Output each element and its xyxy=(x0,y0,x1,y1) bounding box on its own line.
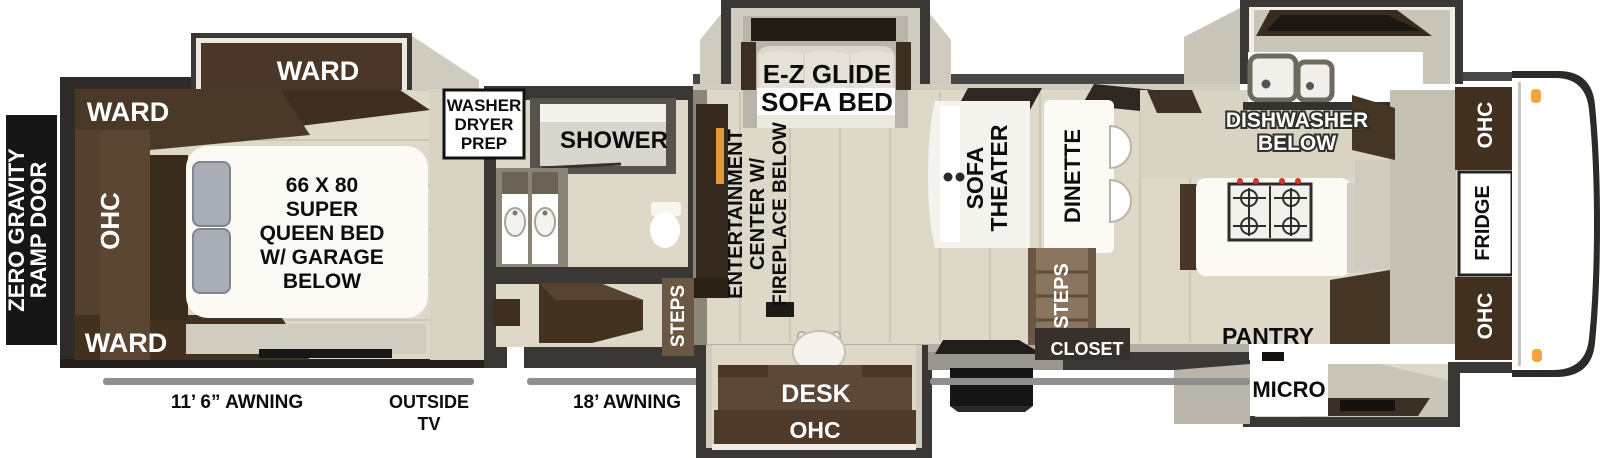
svg-text:MICRO: MICRO xyxy=(1252,377,1325,402)
svg-text:THEATER: THEATER xyxy=(986,124,1012,231)
svg-text:WARD: WARD xyxy=(277,56,360,86)
svg-text:TV: TV xyxy=(417,414,440,434)
svg-text:STEPS: STEPS xyxy=(668,285,689,347)
svg-text:WARD: WARD xyxy=(85,328,168,358)
svg-text:W/ GARAGE: W/ GARAGE xyxy=(260,246,384,269)
svg-text:CENTER W/: CENTER W/ xyxy=(747,157,769,270)
svg-text:OHC: OHC xyxy=(1474,293,1497,340)
svg-text:BELOW: BELOW xyxy=(1258,132,1336,155)
svg-text:STEPS: STEPS xyxy=(1051,263,1073,329)
svg-text:OHC: OHC xyxy=(95,192,125,250)
svg-text:DISHWASHER: DISHWASHER xyxy=(1226,109,1368,132)
svg-text:CLOSET: CLOSET xyxy=(1050,339,1123,359)
svg-text:WARD: WARD xyxy=(87,97,170,127)
svg-text:PREP: PREP xyxy=(461,134,507,153)
svg-text:SUPER: SUPER xyxy=(286,198,358,221)
svg-text:DESK: DESK xyxy=(781,380,850,408)
svg-text:PANTRY: PANTRY xyxy=(1222,323,1314,349)
svg-text:11’ 6” AWNING: 11’ 6” AWNING xyxy=(171,392,303,413)
svg-text:SHOWER: SHOWER xyxy=(560,127,668,154)
svg-text:RAMP DOOR: RAMP DOOR xyxy=(26,162,51,299)
svg-text:OUTSIDE: OUTSIDE xyxy=(389,392,469,412)
svg-text:FRIDGE: FRIDGE xyxy=(1472,185,1494,261)
svg-text:OHC: OHC xyxy=(1474,102,1497,149)
svg-text:OHC: OHC xyxy=(789,417,840,443)
svg-text:DRYER: DRYER xyxy=(455,115,514,134)
svg-text:ENTERTAINMENT: ENTERTAINMENT xyxy=(725,129,747,299)
svg-text:SOFA BED: SOFA BED xyxy=(761,87,893,117)
svg-text:BELOW: BELOW xyxy=(283,270,361,293)
svg-text:66 X 80: 66 X 80 xyxy=(286,174,358,197)
svg-text:FIREPLACE BELOW: FIREPLACE BELOW xyxy=(770,122,791,306)
svg-text:DINETTE: DINETTE xyxy=(1060,129,1085,223)
svg-text:18’ AWNING: 18’ AWNING xyxy=(573,392,681,413)
svg-text:WASHER: WASHER xyxy=(447,96,522,115)
svg-text:E-Z GLIDE: E-Z GLIDE xyxy=(763,59,892,89)
svg-text:SOFA: SOFA xyxy=(962,147,988,210)
svg-text:QUEEN BED: QUEEN BED xyxy=(260,222,385,245)
